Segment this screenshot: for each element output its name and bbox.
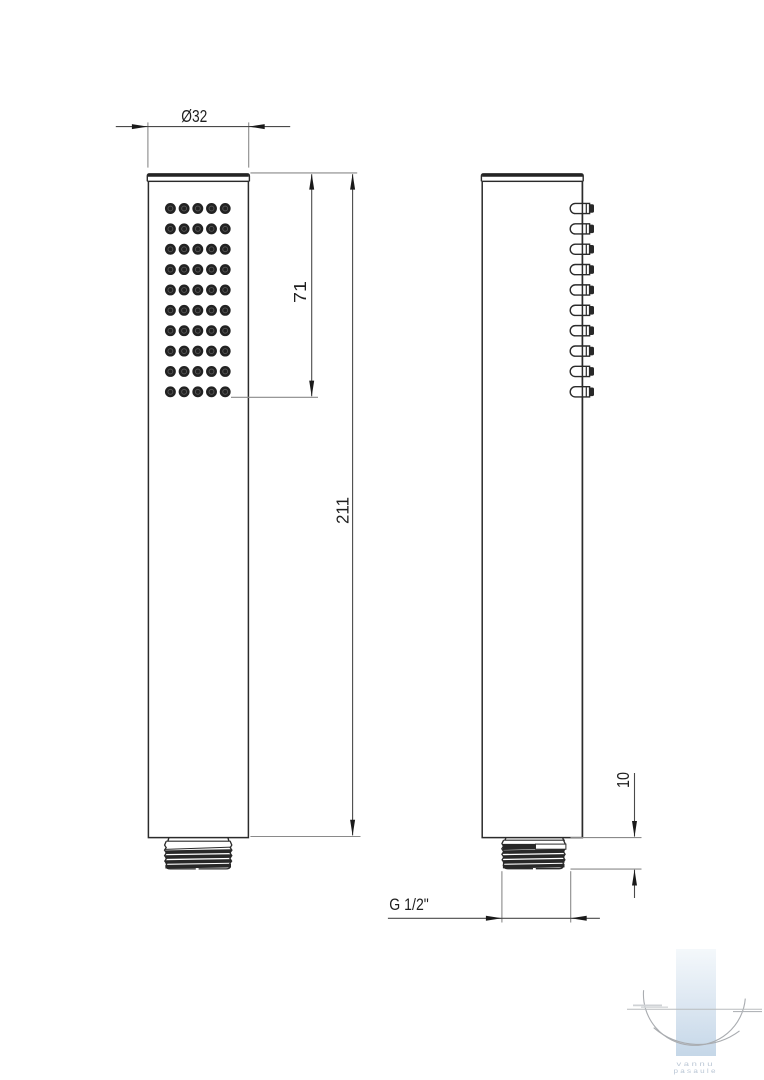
svg-text:v a n n u: v a n n u — [677, 1061, 714, 1068]
svg-text:10: 10 — [613, 772, 633, 788]
svg-text:Ø32: Ø32 — [181, 106, 207, 126]
svg-text:G 1/2": G 1/2" — [389, 896, 429, 914]
svg-text:p a s a u l e: p a s a u l e — [674, 1068, 716, 1075]
svg-text:71: 71 — [290, 281, 310, 303]
svg-text:211: 211 — [333, 497, 353, 524]
